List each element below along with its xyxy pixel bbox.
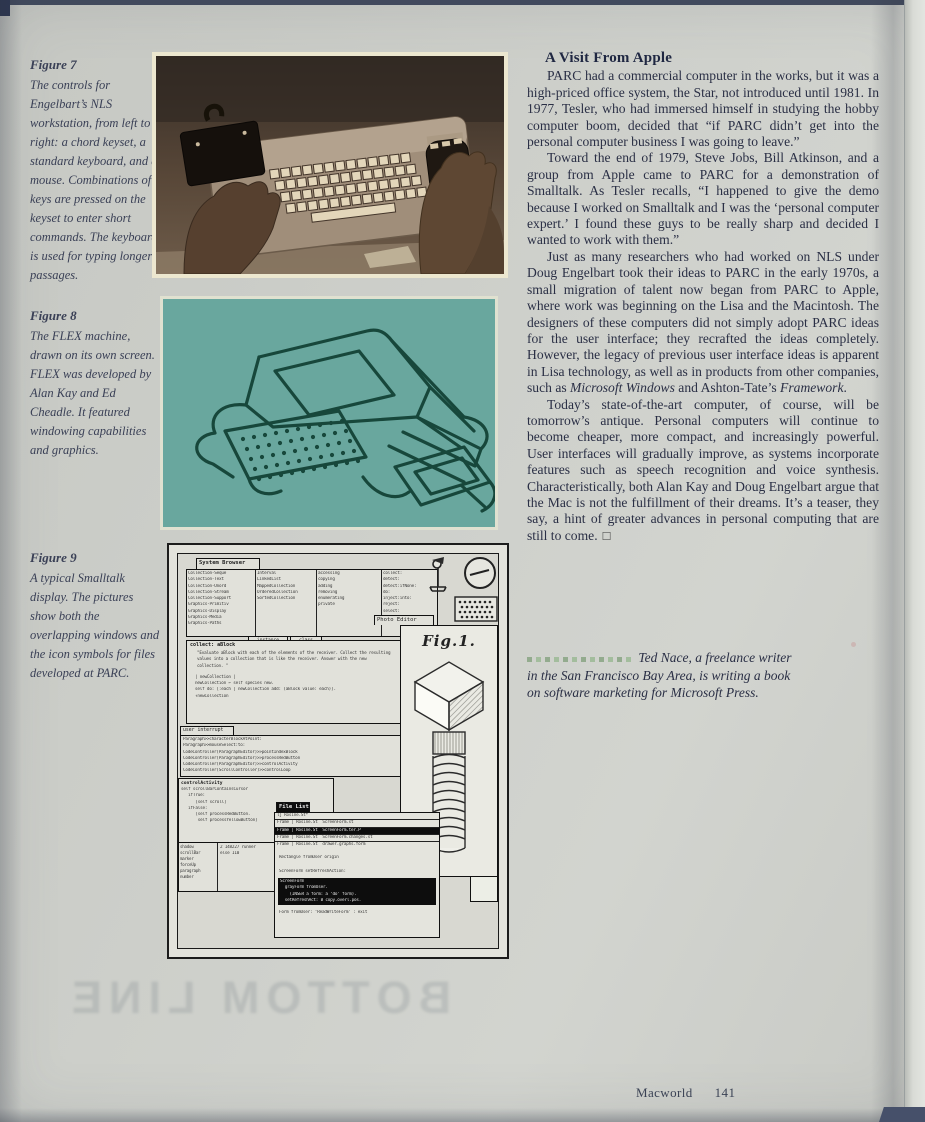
method-comment: "Evaluate aBlock with each of the elemen… — [187, 650, 401, 670]
end-of-article-mark: ☐ — [598, 531, 612, 543]
figure7-photo — [152, 52, 508, 278]
article-paragraph: Today’s state-of-the-art computer, of co… — [527, 397, 879, 546]
figure9-caption: Figure 9 A typical Smalltalk display. Th… — [30, 548, 161, 683]
scan-edge-top — [0, 0, 925, 5]
figure7-caption: Figure 7 The controls for Engelbart’s NL… — [30, 55, 161, 285]
file-list-line: Rectangle fromUser origin — [279, 855, 439, 861]
figure8-caption: Figure 8 The FLEX machine, drawn on its … — [30, 306, 161, 460]
fig1-label: Fig.1. — [401, 632, 497, 650]
file-list-footer: Form fromUser: ‘ReadWriteForm’ : exit — [279, 910, 439, 916]
browser-protocol-list: accessingcopyingaddingremovingenumeratin… — [317, 570, 382, 636]
figure7-caption-title: Figure 7 — [30, 55, 161, 74]
byline-dots — [527, 650, 635, 665]
article-paragraph: PARC had a commercial computer in the wo… — [527, 68, 879, 150]
stack-line: CodeController(ScrollController)>>contro… — [183, 768, 409, 774]
paragraph-text: . — [843, 380, 846, 395]
halftone-grid-icon — [454, 596, 498, 622]
file-list-window: lj Rosine.St*Frame | Rosine.St ScreenFor… — [274, 812, 440, 938]
bleed-through-text: BOTTOM LINE — [52, 972, 464, 1034]
page-edge-bottom — [0, 1108, 925, 1122]
file-row: Frame | Rosine.St ScreenForm.changes.st — [275, 834, 439, 841]
code-line: setRefreshAct: B copy.overl.pos. — [280, 898, 434, 904]
file-row: Frame | Rosine.St drawer.graphs.form — [275, 841, 439, 848]
file-list-line: ScreenForm setRefreshAction: — [279, 869, 439, 875]
code-line: ↑newCollection — [187, 694, 401, 700]
adjacent-page-edge — [904, 0, 925, 1122]
magazine-name: Macworld — [636, 1085, 693, 1100]
control-window-title: controlActivity — [181, 780, 331, 787]
inverse-code-block: ScreenForm grayForm fromUser. (INSER a f… — [278, 878, 436, 905]
figure9-smalltalk-screen: System Browser Collection-SequeCollectio… — [167, 543, 509, 959]
figure8-caption-title: Figure 8 — [30, 306, 161, 325]
list-row: private — [318, 602, 380, 608]
page-curve-shadow — [871, 0, 905, 1122]
mini-left-list: shadowscrollBarmarkerforceUpparagraphnum… — [179, 843, 218, 891]
nls-workstation-photo — [156, 56, 504, 274]
photo-editor-tab: Photo Editor — [374, 615, 434, 625]
article-column: A Visit From Apple PARC had a commercial… — [527, 50, 879, 545]
joystick-icon — [424, 555, 452, 595]
article-headline: A Visit From Apple — [545, 50, 879, 66]
interrupt-stack-window: Paragraph>>characterBlockAtPoint:Paragra… — [180, 735, 412, 777]
file-row: Frame | Rosine.St ScreenForm.st — [275, 819, 439, 826]
figure8-drawing — [160, 296, 498, 530]
paragraph-text: and Ashton-Tate’s — [675, 380, 780, 395]
figure9-caption-title: Figure 9 — [30, 548, 161, 567]
method-title: collect: aBlock — [187, 641, 401, 650]
scan-corner-bottom-right — [879, 1107, 925, 1122]
scan-speck — [851, 642, 856, 647]
method-code-window: collect: aBlock "Evaluate aBlock with ea… — [186, 640, 402, 724]
page-footer: Macworld141 — [636, 1085, 735, 1101]
magazine-page: BOTTOM LINE Figure 7 The controls for En… — [0, 0, 925, 1122]
code-line: | newCollection | — [187, 670, 401, 681]
figure8-caption-text: The FLEX machine, drawn on its own scree… — [30, 327, 161, 460]
article-paragraph: Toward the end of 1979, Steve Jobs, Bill… — [527, 150, 879, 248]
list-row: SortedCollection — [257, 596, 315, 602]
figure9-caption-text: A typical Smalltalk display. The picture… — [30, 569, 161, 683]
figure7-caption-text: The controls for Engelbart’s NLS worksta… — [30, 76, 161, 285]
list-row: Graphics-Paths — [188, 621, 254, 627]
smalltalk-display: System Browser Collection-SequeCollectio… — [177, 553, 499, 949]
paragraph-text: Just as many researchers who had worked … — [527, 249, 879, 395]
browser-class-list: IntervalLinkedListMappedCollectionOrdere… — [256, 570, 317, 636]
clock-icon — [462, 555, 498, 593]
file-list-rows: lj Rosine.St*Frame | Rosine.St ScreenFor… — [275, 813, 439, 848]
article-paragraph: Just as many researchers who had worked … — [527, 249, 879, 397]
browser-category-list: Collection-SequeCollection-TextCollectio… — [187, 570, 256, 636]
system-browser-tab: System Browser — [196, 558, 260, 569]
author-byline: Ted Nace, a freelance writer in the San … — [527, 649, 795, 702]
flex-machine-drawing — [163, 299, 495, 527]
file-list-tab: File List — [276, 802, 310, 812]
page-edge-left — [0, 0, 22, 1122]
page-number: 141 — [715, 1085, 736, 1100]
interrupt-window-tab: user interrupt — [180, 726, 234, 735]
file-row: Frame | Rosine.St ScreenForm.ter.P — [275, 827, 439, 834]
paragraph-text: Today’s state-of-the-art computer, of co… — [527, 397, 879, 543]
list-row: number — [180, 874, 216, 880]
italic-title: Framework — [780, 380, 843, 395]
italic-title: Microsoft Windows — [570, 380, 675, 395]
